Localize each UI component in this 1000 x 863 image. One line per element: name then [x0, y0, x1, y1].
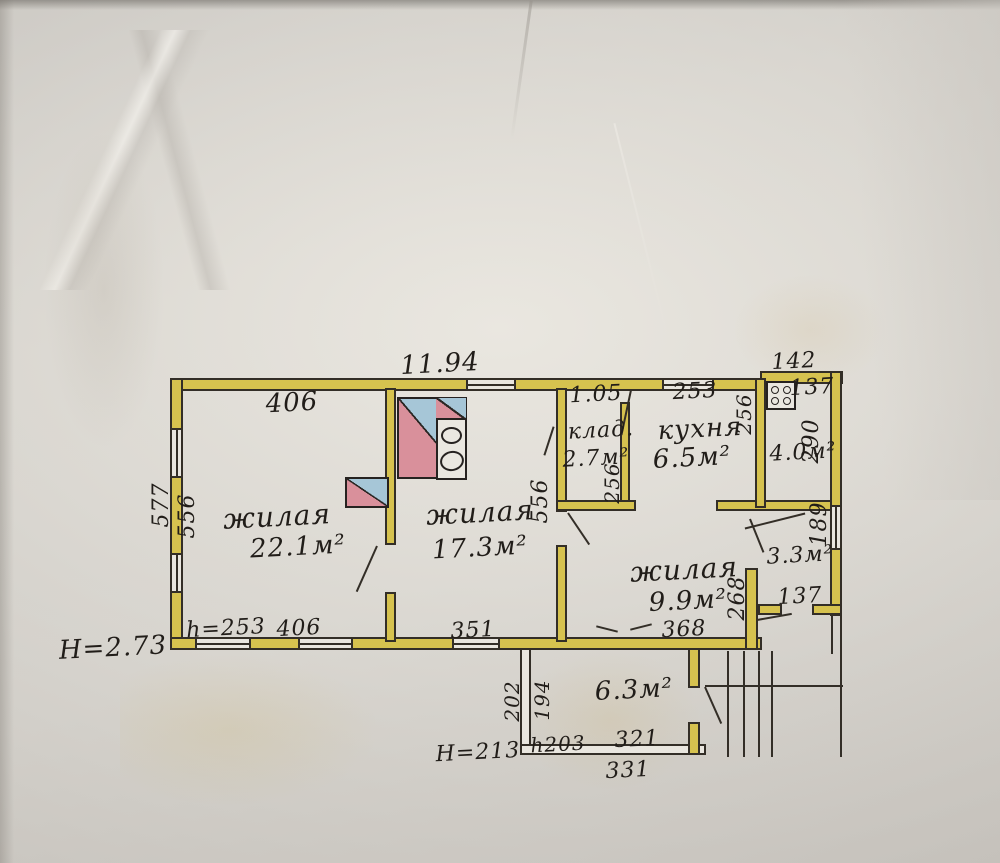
room-kitchen-name: кухня [657, 414, 743, 444]
paper-edge-shadow-left [0, 0, 14, 863]
stairs-landing-line [705, 685, 843, 687]
room-living3-area: 9.9м² [648, 586, 728, 616]
dim-room33-window: 189 [809, 502, 831, 547]
dim-veranda-left-inner: 194 [532, 679, 552, 720]
room-living2-name: жилая [425, 496, 534, 530]
dim-left-outer: 577 [151, 483, 173, 528]
room-storage-name: клад. [567, 418, 634, 443]
dim-bottom-mid: 351 [450, 619, 496, 643]
dim-bottom-h: h=253 [186, 616, 267, 642]
dim-kitchen-top: 253 [672, 380, 718, 404]
room-storage-area: 2.7м² [562, 446, 630, 471]
door-arc-left [596, 625, 618, 632]
small-stove-icon [345, 477, 389, 508]
masonry-stove-icon [397, 397, 467, 479]
room-veranda-area: 6.3м² [594, 675, 674, 705]
door-swing-living1 [356, 546, 378, 592]
wing-wall-extension [831, 616, 833, 654]
floor-plan-sheet: 11.94 406 1.05 253 142 137 290 256 256 5… [0, 0, 1000, 863]
dim-veranda-bottom-inner: 321 [614, 728, 660, 752]
dim-wing-top: 142 [771, 350, 817, 374]
veranda-wall-right-upper [688, 648, 700, 688]
door-swing-living2-living3 [567, 512, 590, 545]
stairs-step-line [743, 651, 745, 757]
window-left-lower [170, 553, 183, 593]
burner-oval-icon [441, 427, 462, 444]
paper-crease-line [613, 123, 668, 337]
paper-edge-shadow [0, 0, 1000, 10]
dim-storage-top: 1.05 [569, 383, 623, 408]
window-left-upper [170, 428, 183, 478]
dim-left-inner: 556 [177, 494, 199, 539]
paper-stain [120, 640, 480, 820]
wall-kitchen-room40 [755, 378, 766, 508]
stairs-right-edge [840, 614, 842, 757]
stove-burner-box [436, 418, 467, 480]
room-kitchen-area: 6.5м² [652, 443, 732, 473]
dim-veranda-left-outer: 202 [502, 680, 522, 721]
dim-top-left-room: 406 [265, 389, 319, 418]
stove-corner-fill [436, 398, 466, 420]
note-main-height: H=2.73 [58, 632, 168, 664]
paper-crease-line [510, 0, 532, 139]
dim-top-total: 11.94 [400, 349, 481, 379]
door-arc-right [630, 623, 652, 630]
dim-wing-stove: 137 [789, 376, 835, 400]
veranda-wall-right-lower [688, 722, 700, 755]
burner-dot-icon [771, 397, 779, 405]
room-room40-area: 4.0м² [769, 440, 837, 465]
wall-living2-mid-lower [556, 545, 567, 642]
stairs-step-line [727, 651, 729, 757]
paper-crease [0, 30, 260, 290]
wall-living1-living2-lower [385, 592, 396, 642]
room-room33-area: 3.3м² [766, 543, 834, 568]
dim-bottom-right: 368 [661, 618, 707, 642]
wall-under-storage [556, 500, 636, 511]
dim-bottom-left: 406 [276, 617, 322, 641]
door-swing-veranda [704, 687, 722, 724]
burner-oval-icon [438, 449, 466, 474]
dim-room33-bottom: 137 [777, 585, 823, 609]
room-living2-area: 17.3м² [431, 533, 528, 564]
dim-veranda-bottom-outer: 331 [605, 759, 651, 783]
room-living3-name: жилая [629, 553, 738, 587]
burner-dot-icon [771, 386, 779, 394]
leader-line-189 [745, 513, 806, 530]
stairs-step-line [758, 651, 760, 757]
room-living1-name: жилая [222, 500, 331, 534]
note-veranda-height: H=213 [435, 740, 521, 766]
room-living1-area: 22.1м² [249, 532, 346, 563]
stairs-step-line [771, 651, 773, 757]
wall-living1-living2-upper [385, 388, 396, 545]
dim-veranda-h: h203 [530, 733, 586, 756]
leader-line-storage-door [543, 426, 554, 455]
window-top-living2 [466, 378, 516, 391]
